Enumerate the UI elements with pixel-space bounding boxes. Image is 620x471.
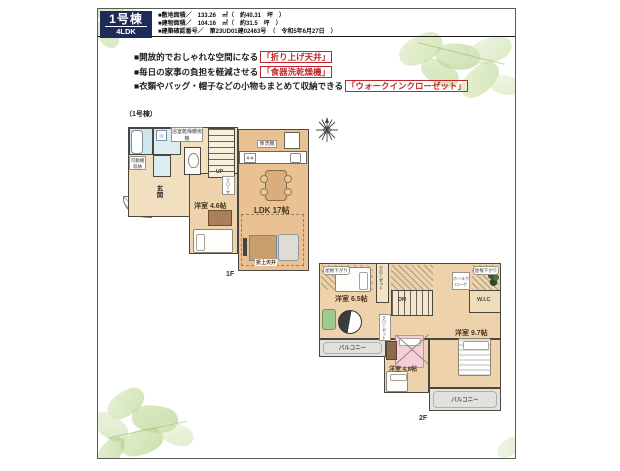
header-divider (98, 36, 515, 37)
refrigerator (284, 132, 300, 149)
f1-closet-label: クローゼット (222, 176, 235, 195)
roof-slope-left-label: 屋根下がり (323, 266, 350, 275)
washbasin (156, 130, 167, 141)
feature-highlight: 「ウォークインクローゼット」 (345, 80, 468, 92)
dining-chair (284, 188, 292, 196)
leaf-decoration (494, 434, 516, 459)
tv-icon (243, 238, 247, 256)
building-badge-subtitle: 4LDK (105, 26, 147, 36)
building-badge-title: 1号棟 (109, 13, 143, 26)
desk (208, 210, 232, 226)
round-table (338, 310, 362, 334)
roof-slope-right-label: 屋根下がり (473, 266, 499, 275)
f2-closet-label: クローゼット (378, 266, 384, 290)
bathtub (131, 130, 143, 154)
plan-caption: （1号棟） (125, 109, 157, 119)
f2-balcony-right: バルコニー (429, 388, 501, 411)
f2-floor-label: 2F (419, 415, 427, 422)
f2-stairs-dn-label: DN (398, 297, 406, 303)
bed (193, 229, 233, 253)
bath-dryer-label: 浴室乾燥暖房機 (171, 127, 203, 142)
feature-item: ■開放的でおしゃれな空間になる「折り上げ天井」 (134, 50, 468, 65)
movable-shelf-label: 可動棚収納 (129, 156, 146, 170)
kitchen-sink-icon (290, 153, 301, 163)
building-badge: 1号棟 4LDK (100, 11, 152, 38)
spec-building-area: ■建物面積／ 104.16 ㎡（ 約31.5 坪 ） (158, 20, 337, 28)
dining-table (265, 170, 287, 201)
f1-stairs-up-label: UP (216, 169, 223, 175)
feature-lead: ■衣類やバッグ・帽子などの小物もまとめて収納できる (134, 81, 343, 91)
feature-highlight: 「食器洗乾燥機」 (260, 66, 332, 78)
wic-label: W.I.C (477, 297, 490, 303)
f1-entrance-label: 玄関 (153, 185, 163, 198)
content-frame: 1号棟 4LDK ■敷地面積／ 133.26 ㎡（ 約40.31 坪 ） ■建物… (97, 8, 516, 459)
feature-highlight: 「折り上げ天井」 (260, 51, 332, 63)
f1-bedroom-label: 洋室 4.6帖 (194, 201, 227, 211)
flyer-page: 1号棟 4LDK ■敷地面積／ 133.26 ㎡（ 約40.31 坪 ） ■建物… (0, 0, 620, 471)
spec-confirmation-number: ■建築確認番号／ 第23UD01建02463号 （ 令和5年6月27日 ） (158, 28, 337, 36)
f2-bedroom65-label: 洋室 6.5帖 (335, 294, 368, 304)
feature-lead: ■毎日の家事の負担を軽減させる (134, 67, 258, 77)
north-compass-icon (314, 117, 340, 143)
feature-lead: ■開放的でおしゃれな空間になる (134, 52, 258, 62)
f2-closet48-label: クローゼット (379, 314, 391, 341)
stove-icon (244, 153, 256, 163)
f2-bedroom97-label: 洋室 9.7帖 (455, 328, 488, 338)
balcony-right-label: バルコニー (430, 395, 500, 403)
f2-staircase (391, 290, 433, 316)
feature-item: ■毎日の家事の負担を軽減させる「食器洗乾燥機」 (134, 65, 468, 80)
f2-stairwell-hatch (391, 265, 433, 290)
f2-bedroom48-label: 洋室 4.8帖 (389, 364, 417, 373)
f1-ldk-label: LDK 17帖 (254, 205, 290, 216)
dining-chair (260, 188, 268, 196)
dining-chair (284, 175, 292, 183)
spec-land-area: ■敷地面積／ 133.26 ㎡（ 約40.31 坪 ） (158, 12, 337, 20)
balcony-left-label: バルコニー (320, 344, 385, 352)
dining-chair (260, 175, 268, 183)
toilet-icon (188, 153, 199, 168)
f1-washroom-lower (153, 155, 171, 177)
chair (322, 309, 336, 330)
dishwasher-label: 食洗機 (257, 140, 277, 148)
raised-ceiling-label: 折上天井 (255, 259, 277, 266)
feature-list: ■開放的でおしゃれな空間になる「折り上げ天井」 ■毎日の家事の負担を軽減させる「… (134, 50, 468, 94)
hall-cloak-label: ホールクローク (452, 272, 470, 290)
f2-balcony-left: バルコニー (319, 339, 386, 357)
sofa (278, 234, 299, 261)
bed (386, 371, 408, 392)
property-specs: ■敷地面積／ 133.26 ㎡（ 約40.31 坪 ） ■建物面積／ 104.1… (158, 12, 337, 36)
desk (386, 341, 397, 360)
rug (249, 235, 277, 261)
bed (458, 338, 491, 376)
f1-floor-label: 1F (226, 271, 234, 278)
feature-item: ■衣類やバッグ・帽子などの小物もまとめて収納できる「ウォークインクローゼット」 (134, 79, 468, 94)
